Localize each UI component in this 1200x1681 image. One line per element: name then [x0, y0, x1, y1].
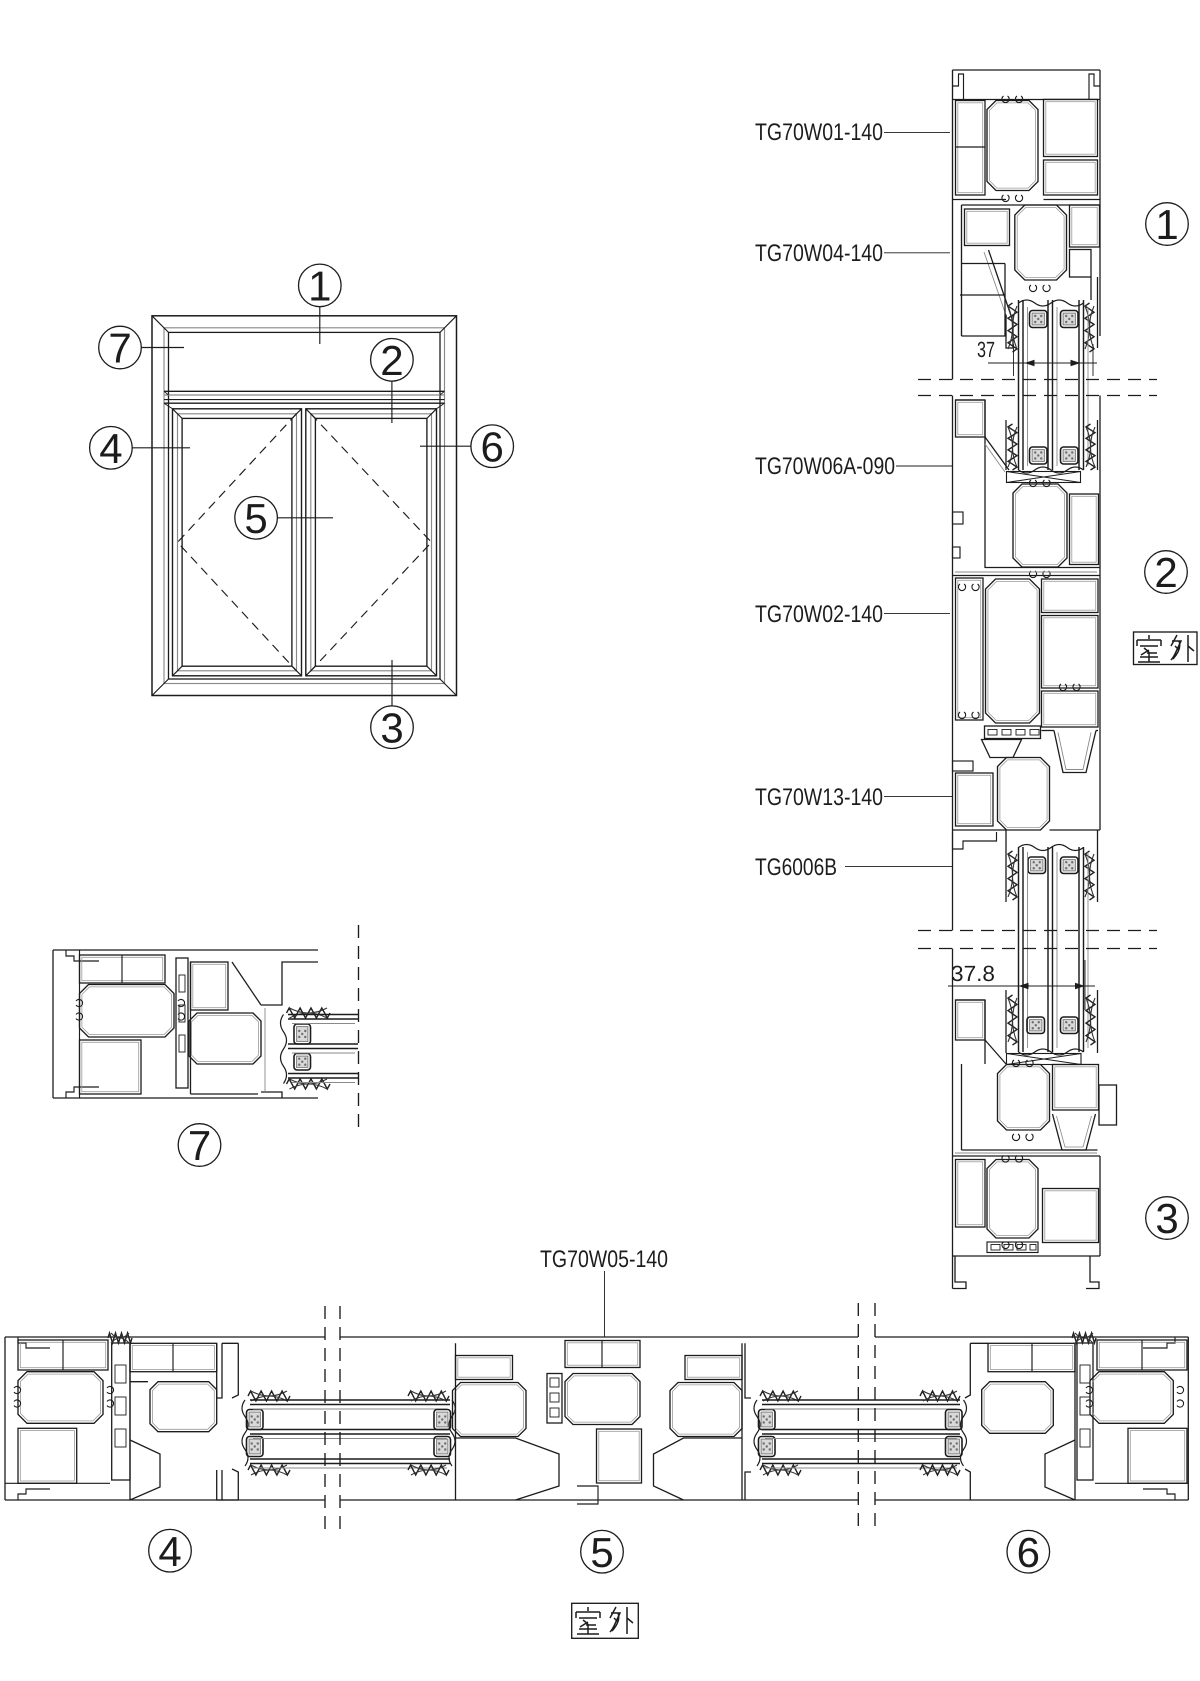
svg-text:4: 4	[158, 1528, 181, 1575]
svg-text:6: 6	[481, 423, 504, 470]
svg-text:37.8: 37.8	[951, 961, 995, 986]
svg-text:4: 4	[99, 425, 122, 472]
svg-text:7: 7	[188, 1122, 211, 1169]
svg-text:TG70W13-140: TG70W13-140	[755, 784, 883, 811]
svg-text:5: 5	[590, 1529, 613, 1576]
svg-text:2: 2	[380, 337, 403, 384]
svg-text:2: 2	[1154, 549, 1177, 596]
svg-text:7: 7	[108, 325, 131, 372]
svg-text:TG70W05-140: TG70W05-140	[540, 1246, 668, 1273]
svg-text:6: 6	[1017, 1529, 1040, 1576]
svg-text:TG70W01-140: TG70W01-140	[755, 119, 883, 146]
svg-text:3: 3	[1155, 1195, 1178, 1242]
svg-text:TG70W04-140: TG70W04-140	[755, 240, 883, 267]
svg-text:37: 37	[977, 337, 995, 362]
svg-text:TG70W02-140: TG70W02-140	[755, 601, 883, 628]
svg-text:TG6006B: TG6006B	[755, 854, 837, 881]
svg-text:TG70W06A-090: TG70W06A-090	[755, 453, 895, 480]
svg-text:1: 1	[308, 263, 331, 310]
svg-text:3: 3	[380, 704, 403, 751]
svg-text:5: 5	[244, 495, 267, 542]
svg-text:1: 1	[1155, 201, 1178, 248]
